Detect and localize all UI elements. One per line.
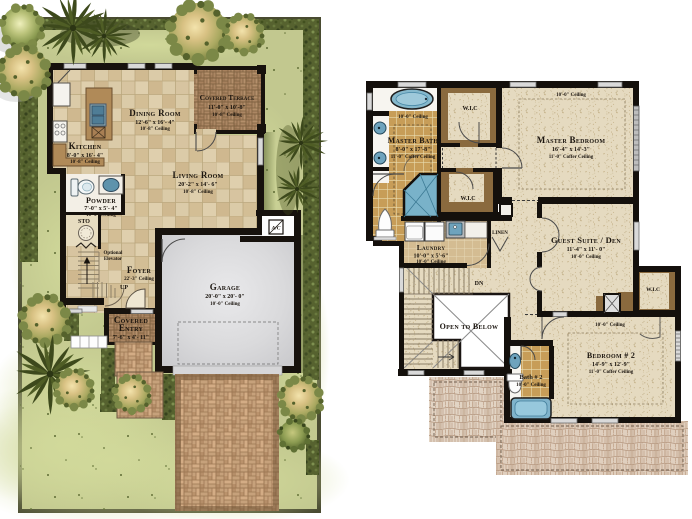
svg-text:10'-8" Ceiling: 10'-8" Ceiling	[140, 127, 170, 132]
svg-text:10'-0" Ceiling: 10'-0" Ceiling	[86, 213, 116, 218]
svg-text:Covered Terrace: Covered Terrace	[200, 93, 255, 102]
svg-text:Bath # 2: Bath # 2	[519, 374, 542, 381]
svg-text:Master Bath: Master Bath	[388, 136, 439, 145]
svg-text:11'-4" x 11'- 0": 11'-4" x 11'- 0"	[567, 247, 606, 253]
svg-text:10'-0" Ceiling: 10'-0" Ceiling	[556, 93, 586, 98]
svg-text:Garage: Garage	[210, 282, 240, 292]
svg-text:W.I.C: W.I.C	[462, 106, 477, 112]
svg-text:LINEN: LINEN	[492, 231, 508, 236]
svg-text:DN: DN	[475, 281, 484, 287]
svg-text:10'-0" x 5'-6": 10'-0" x 5'-6"	[414, 254, 449, 260]
svg-text:22'-3" Ceiling: 22'-3" Ceiling	[124, 277, 154, 282]
svg-text:20'-0" x 20'- 0": 20'-0" x 20'- 0"	[205, 294, 245, 300]
svg-text:Open to Below: Open to Below	[440, 322, 499, 331]
svg-text:10'-0" Ceiling: 10'-0" Ceiling	[210, 302, 240, 307]
svg-text:10'-0" Ceiling: 10'-0" Ceiling	[416, 260, 446, 265]
svg-text:10'-8" Ceiling: 10'-8" Ceiling	[212, 113, 242, 118]
svg-text:12'-6" x 16'- 4": 12'-6" x 16'- 4"	[135, 120, 175, 126]
svg-text:10'-0" Ceiling: 10'-0" Ceiling	[595, 323, 625, 328]
svg-text:10'-0" Ceiling: 10'-0" Ceiling	[398, 115, 428, 120]
svg-text:UP: UP	[120, 285, 128, 291]
svg-text:14'-9" x 12'-9": 14'-9" x 12'-9"	[592, 362, 630, 368]
svg-text:10'-0" Ceiling: 10'-0" Ceiling	[516, 383, 546, 388]
svg-text:W.I.C: W.I.C	[646, 287, 660, 293]
svg-text:Master Bedroom: Master Bedroom	[537, 135, 606, 145]
svg-text:Foyer: Foyer	[127, 265, 152, 275]
svg-text:Laundry: Laundry	[417, 243, 446, 252]
svg-text:Kitchen: Kitchen	[69, 141, 102, 151]
svg-text:Entry: Entry	[119, 323, 144, 333]
svg-text:Guest Suite / Den: Guest Suite / Den	[551, 235, 621, 245]
svg-text:10'-0" Ceiling: 10'-0" Ceiling	[571, 255, 601, 260]
svg-text:10'-8" Ceiling: 10'-8" Ceiling	[70, 160, 100, 165]
svg-text:7'-0" x 5'- 4": 7'-0" x 5'- 4"	[84, 206, 118, 212]
svg-text:11'-0" x 10'-8": 11'-0" x 10'-8"	[208, 105, 246, 111]
svg-text:STO: STO	[78, 219, 90, 225]
svg-text:11'-0" Coffer Ceiling: 11'-0" Coffer Ceiling	[589, 370, 634, 375]
svg-text:Elevator: Elevator	[104, 257, 123, 262]
svg-text:10'-8" Ceiling: 10'-8" Ceiling	[183, 190, 213, 195]
svg-text:11'-0" Coffer Ceiling: 11'-0" Coffer Ceiling	[391, 155, 436, 160]
svg-text:Powder: Powder	[86, 196, 116, 205]
svg-text:Living Room: Living Room	[172, 170, 223, 180]
svg-text:A/C: A/C	[271, 226, 281, 232]
svg-text:Dining Room: Dining Room	[129, 108, 181, 118]
svg-text:Optional: Optional	[104, 251, 124, 256]
svg-text:Bedroom # 2: Bedroom # 2	[587, 351, 635, 360]
svg-text:7'-6" x 4'- 11": 7'-6" x 4'- 11"	[113, 335, 149, 341]
svg-text:W.I.C: W.I.C	[460, 196, 475, 202]
svg-text:8'-0" x 17'-8": 8'-0" x 17'-8"	[396, 147, 431, 153]
svg-text:20'-2" x 14'- 6": 20'-2" x 14'- 6"	[178, 182, 218, 188]
svg-text:16'-4" x 14'-3": 16'-4" x 14'-3"	[552, 147, 590, 153]
svg-text:11'-0" Coffer Ceiling: 11'-0" Coffer Ceiling	[549, 155, 594, 160]
svg-text:8'-0" x 16'- 4": 8'-0" x 16'- 4"	[67, 153, 104, 159]
